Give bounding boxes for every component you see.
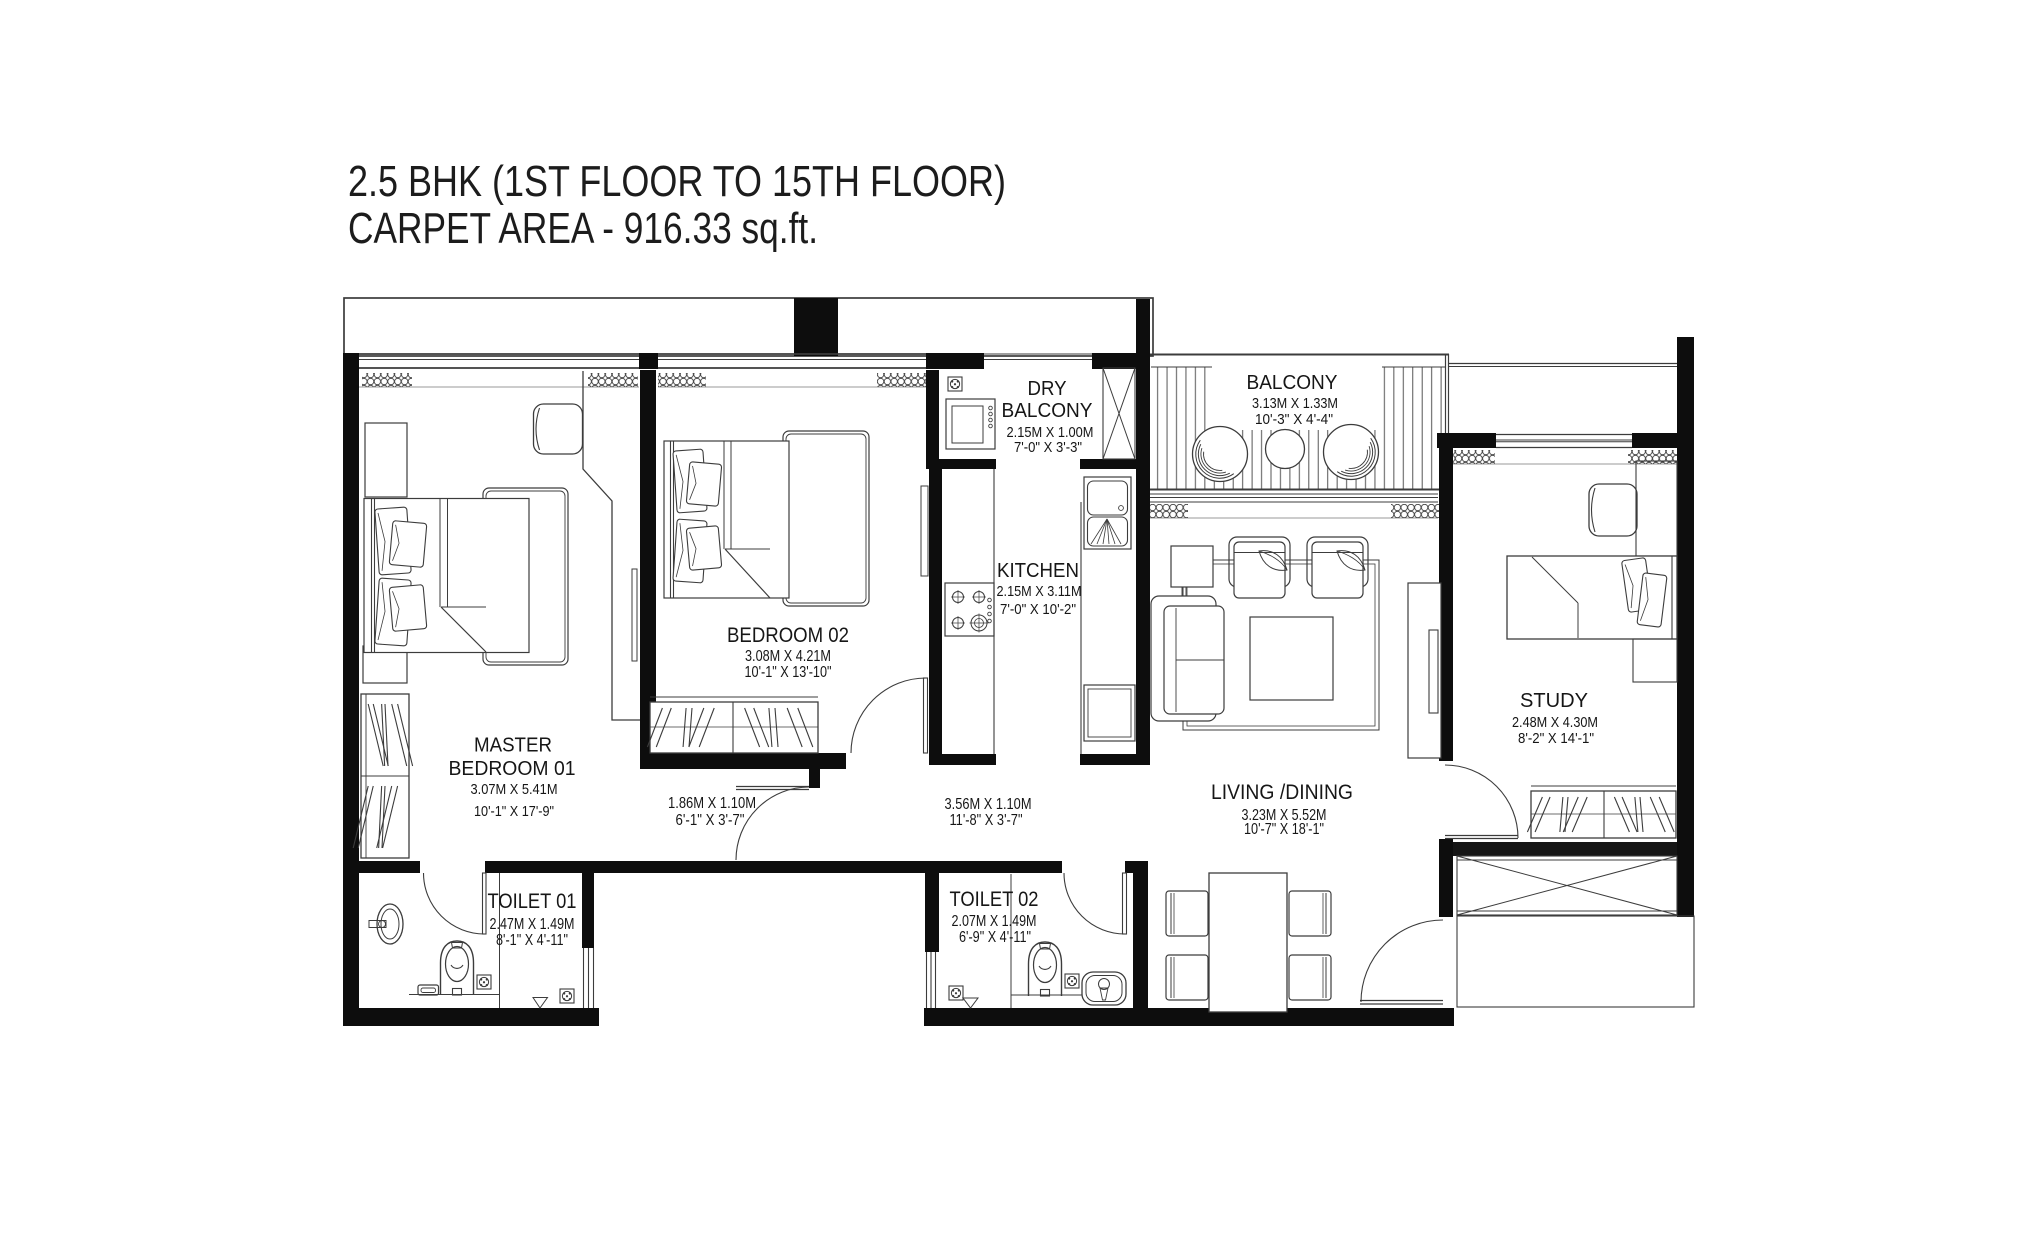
svg-text:TOILET 02: TOILET 02 (950, 887, 1039, 911)
svg-text:2.15M X 1.00M: 2.15M X 1.00M (1007, 425, 1094, 441)
svg-text:CARPET AREA - 916.33 sq.ft.: CARPET AREA - 916.33 sq.ft. (348, 204, 818, 253)
svg-text:10'-1" X 17'-9": 10'-1" X 17'-9" (474, 803, 554, 820)
svg-text:BALCONY: BALCONY (1002, 400, 1093, 422)
svg-text:2.5 BHK (1ST FLOOR TO 15TH FLO: 2.5 BHK (1ST FLOOR TO 15TH FLOOR) (348, 157, 1006, 206)
svg-text:KITCHEN: KITCHEN (997, 560, 1079, 582)
svg-text:2.15M X 3.11M: 2.15M X 3.11M (997, 584, 1082, 600)
svg-text:STUDY: STUDY (1520, 690, 1588, 712)
svg-text:BEDROOM 01: BEDROOM 01 (449, 758, 576, 780)
svg-text:BEDROOM 02: BEDROOM 02 (727, 623, 849, 647)
svg-text:10'-3" X 4'-4": 10'-3" X 4'-4" (1255, 412, 1333, 428)
svg-text:7'-0" X 10'-2": 7'-0" X 10'-2" (1000, 602, 1076, 618)
svg-text:2.07M X 1.49M: 2.07M X 1.49M (952, 913, 1037, 930)
svg-text:3.56M X 1.10M: 3.56M X 1.10M (945, 796, 1032, 813)
svg-text:1.86M X 1.10M: 1.86M X 1.10M (668, 795, 756, 812)
svg-text:10'-7" X 18'-1": 10'-7" X 18'-1" (1244, 821, 1324, 838)
svg-text:7'-0" X 3'-3": 7'-0" X 3'-3" (1014, 440, 1082, 456)
svg-text:3.07M X 5.41M: 3.07M X 5.41M (471, 781, 558, 798)
svg-text:MASTER: MASTER (474, 735, 552, 757)
svg-text:TOILET 01: TOILET 01 (488, 889, 577, 913)
svg-text:8'-1" X 4'-11": 8'-1" X 4'-11" (496, 932, 568, 949)
svg-text:8'-2" X 14'-1": 8'-2" X 14'-1" (1518, 731, 1594, 747)
svg-text:11'-8" X 3'-7": 11'-8" X 3'-7" (950, 812, 1023, 829)
svg-text:10'-1" X 13'-10": 10'-1" X 13'-10" (745, 664, 832, 681)
svg-text:2.48M X 4.30M: 2.48M X 4.30M (1512, 715, 1598, 731)
svg-text:6'-1" X 3'-7": 6'-1" X 3'-7" (676, 812, 745, 829)
svg-text:DRY: DRY (1028, 378, 1067, 400)
svg-text:BALCONY: BALCONY (1247, 372, 1338, 394)
svg-text:6'-9" X 4'-11": 6'-9" X 4'-11" (959, 929, 1031, 946)
svg-text:LIVING /DINING: LIVING /DINING (1211, 780, 1353, 804)
svg-text:3.13M X 1.33M: 3.13M X 1.33M (1252, 396, 1338, 412)
svg-text:3.08M X 4.21M: 3.08M X 4.21M (745, 648, 831, 665)
svg-text:2.47M X 1.49M: 2.47M X 1.49M (490, 916, 575, 933)
